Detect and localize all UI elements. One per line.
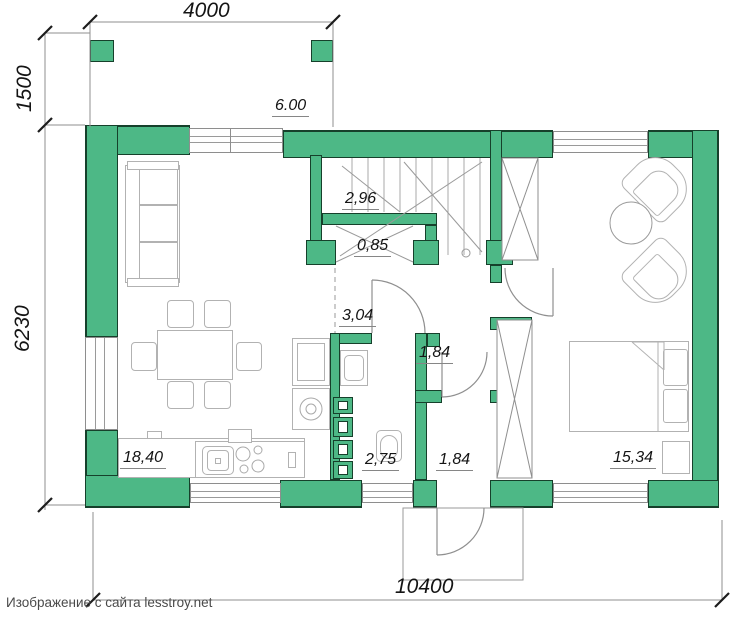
wall-bottom-right-corner [648, 480, 719, 508]
chair [204, 300, 231, 328]
stove-dials [288, 452, 296, 468]
dim-top-width: 4000 [183, 0, 230, 21]
washbasin-bowl [344, 355, 364, 381]
dim-porch-depth: 1500 [14, 65, 35, 112]
door-room [505, 268, 553, 316]
porch-column-left [90, 40, 114, 62]
dim-side-height: 6230 [12, 305, 33, 352]
area-stairs: 2,96 [342, 191, 379, 210]
floor-plan: 4000 1500 6230 10400 6.00 2,96 0,85 3,04… [0, 0, 754, 620]
door-back [437, 508, 484, 555]
shelf-box [333, 417, 353, 437]
wall-top-middle [283, 130, 553, 158]
sofa-back [125, 165, 140, 283]
area-corridor: 1,84 [436, 452, 473, 471]
shelf-box [333, 440, 353, 459]
back-porch-outline [403, 508, 523, 580]
sink-drain [215, 458, 221, 464]
chair [167, 300, 194, 328]
door-wc [372, 280, 425, 333]
shaft-lower [497, 320, 532, 478]
stair-niche-foot [413, 240, 439, 265]
sofa-cushion [139, 168, 178, 205]
kitchen-tall-unit-inner [297, 343, 325, 381]
area-wc: 2,75 [362, 452, 399, 471]
shelf-box [333, 397, 353, 414]
window-kitchen [190, 483, 281, 503]
nightstand [662, 441, 690, 474]
wall-bottom-c [490, 480, 553, 508]
kitchen-faucet [147, 431, 162, 439]
shaft-mid-stub [490, 390, 502, 403]
stair-wall-right [490, 130, 502, 242]
stair-wall-left-foot [306, 240, 336, 265]
dim-bottom-width: 10400 [395, 576, 453, 597]
area-porch: 6.00 [272, 98, 309, 117]
window-top-right [553, 131, 648, 153]
window-bedroom [553, 483, 648, 503]
wall-left-upper [85, 125, 118, 337]
stair-wall-right-foot [486, 240, 513, 265]
chair [131, 342, 157, 371]
pillow [663, 349, 688, 386]
window-wc [362, 483, 413, 503]
area-room: 15,34 [610, 450, 656, 469]
porch-column-right [311, 40, 333, 62]
chair [204, 381, 231, 409]
room-door-stub [490, 265, 502, 283]
area-hall: 3,04 [339, 308, 376, 327]
chair [236, 342, 262, 371]
shelf-box [333, 461, 353, 479]
kitchen-appliance [292, 388, 330, 430]
wall-bottom-b [413, 480, 437, 508]
area-under-stairs: 0,85 [354, 238, 391, 257]
pillow [663, 389, 688, 423]
wall-bottom-a [280, 480, 362, 508]
closet-stub [415, 390, 442, 403]
dimension-lines [45, 22, 722, 600]
sofa-armrest [127, 161, 179, 170]
stair-niche-wall [322, 213, 437, 225]
chair [167, 381, 194, 409]
wall-bottom-left-corner [85, 475, 190, 508]
area-kitchen-living: 18,40 [120, 450, 166, 469]
dimension-ticks [38, 15, 729, 607]
watermark: Изображение с сайта lesstroy.net [6, 595, 212, 610]
wall-right [692, 130, 719, 508]
shaft-top-stub [490, 317, 532, 330]
kitchen-hood [228, 429, 252, 443]
area-closet: 1,84 [416, 345, 453, 364]
window-left [85, 337, 118, 430]
entrance-door-threshold [230, 128, 283, 153]
sofa-cushion [139, 205, 178, 242]
sofa-cushion [139, 242, 178, 280]
sofa-armrest [127, 278, 179, 287]
dining-table [157, 330, 233, 380]
